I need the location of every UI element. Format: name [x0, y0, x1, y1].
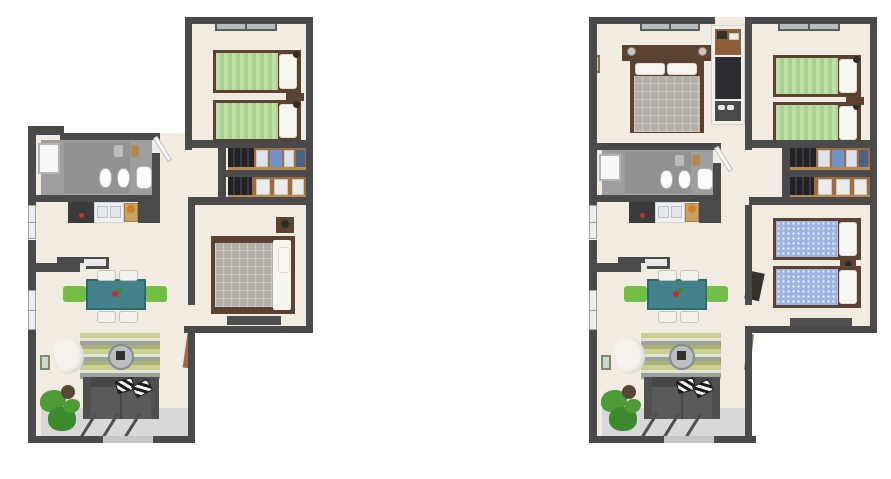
dining-chair-4: [119, 311, 138, 323]
centerpiece-green: [678, 288, 683, 293]
bed2b-mattress: [776, 105, 838, 141]
living-window: [28, 290, 36, 330]
living-right-wall: [745, 333, 752, 443]
master-quilt: [634, 76, 700, 132]
bedroom1-left-wall: [185, 17, 192, 150]
floor-plan-left: [28, 17, 313, 443]
bed1-nightstand: [286, 93, 304, 101]
bed2a-lamp: [853, 56, 860, 63]
wardrobe-divider-wall: [782, 170, 870, 177]
sofa-arm-right: [151, 377, 159, 419]
wardrobe1-box1: [256, 150, 268, 167]
kitchen-right-wall: [713, 163, 721, 223]
wall-picture: [601, 355, 611, 370]
kitchen-window: [589, 205, 597, 239]
bidet: [99, 168, 112, 188]
bath-sink: [136, 166, 152, 189]
wardrobe-left-wall: [218, 148, 226, 197]
master-pillow-2: [667, 63, 697, 75]
kitchen-window: [28, 205, 36, 239]
sofa-seam: [120, 389, 122, 419]
kitchen-half-wall: [28, 263, 86, 272]
bed3a-mattress: [776, 221, 838, 257]
master-top-wall: [589, 17, 715, 24]
hall-top-wall: [60, 133, 160, 140]
closet-shoe-2: [727, 105, 734, 110]
south-wall-a: [28, 436, 103, 443]
kitchen-basket-item: [688, 205, 696, 213]
bedroom2-bottom-wall: [184, 326, 313, 333]
east-wall: [870, 17, 877, 333]
wardrobe2-box3: [854, 179, 867, 195]
bed2-pillow: [278, 247, 290, 273]
closet-upper-item1: [717, 31, 727, 39]
wardrobe-left-wall: [782, 148, 790, 197]
bed1b-pillow: [279, 104, 297, 138]
bedroom2-left-wall: [188, 205, 195, 305]
sideboard-top: [84, 259, 106, 266]
wardrobe2-box1: [256, 179, 270, 195]
dining-chair-4: [680, 311, 699, 323]
bedroom1-bottom-wall: [185, 140, 313, 148]
dining-bench-right: [145, 286, 167, 302]
master-sconce-2: [698, 47, 707, 56]
bed2b-pillow: [839, 106, 857, 140]
green-bottom-wall: [745, 140, 877, 148]
toilet: [678, 170, 691, 189]
kitchen-cabinet: [699, 202, 713, 223]
dining-chair-1: [658, 270, 677, 281]
wardrobe1-box4: [296, 150, 305, 167]
south-wall-b: [714, 436, 756, 443]
bidet: [660, 170, 673, 189]
kitchen-basin1: [97, 206, 108, 218]
master-pillow-1: [635, 63, 665, 75]
bed1b-lamp: [293, 101, 300, 108]
bedroom3-bottom-wall: [745, 326, 877, 333]
sofa-arm-left: [83, 377, 91, 419]
bed3b-mattress: [776, 269, 838, 305]
wardrobe1-box3: [284, 150, 294, 167]
wardrobe1-clothes: [790, 148, 816, 169]
wardrobe1-clothes: [228, 148, 254, 169]
coffee-table-decor: [677, 351, 686, 360]
kitchen-right-wall: [152, 153, 160, 223]
sofa-seam: [681, 389, 683, 419]
living-window: [589, 290, 597, 330]
kitchen-basin2: [110, 206, 121, 218]
sideboard-top: [645, 259, 667, 266]
west-wall-c: [589, 330, 597, 443]
green-top-wall: [745, 17, 877, 24]
south-gap: [103, 436, 153, 443]
shower: [599, 154, 621, 181]
west-wall-a: [589, 17, 597, 205]
bedroom2-mat: [227, 316, 281, 325]
center-wall: [745, 17, 752, 150]
bed1a-mattress: [216, 53, 278, 90]
bath-tap2: [131, 145, 139, 157]
bed1b-mattress: [216, 103, 278, 139]
coffee-table-decor: [116, 351, 125, 360]
west-wall-c: [28, 330, 36, 443]
wardrobe2-box1: [818, 179, 832, 195]
bedroom3-left-wall: [745, 205, 752, 305]
bed3b-pillow: [839, 270, 857, 304]
floor-plan-right: [589, 17, 877, 443]
bath-tap1: [114, 145, 123, 157]
dining-chair-3: [658, 311, 677, 323]
dining-chair-2: [680, 270, 699, 281]
toilet: [117, 168, 130, 188]
dining-chair-2: [119, 270, 138, 281]
closet-rail: [715, 57, 741, 99]
closet-shoe-1: [718, 105, 725, 110]
closet-upper-item2: [729, 33, 739, 40]
bedroom2-lamp: [281, 220, 289, 228]
bed1a-lamp: [293, 51, 300, 58]
bath-tap2: [692, 155, 700, 166]
wardrobe-divider-wall: [218, 170, 313, 177]
bed2-nightstand: [846, 97, 864, 105]
kitchen-basin2: [671, 206, 682, 218]
floor-plans-canvas: [0, 0, 891, 479]
wardrobe1-box2: [270, 150, 282, 167]
bed2a-mattress: [776, 58, 838, 94]
bedroom2-top-wall: [188, 197, 313, 205]
stove-knob: [640, 213, 645, 218]
plant-pot: [622, 385, 636, 399]
kitchen-half-wall-cap: [641, 263, 647, 272]
plant-pot: [61, 385, 75, 399]
kitchen-basin1: [658, 206, 669, 218]
wardrobe2-box3: [292, 179, 304, 195]
stove-knob: [79, 213, 84, 218]
bed1a-pillow: [279, 54, 297, 89]
wardrobe2-box2: [836, 179, 850, 195]
south-wall-a: [589, 436, 664, 443]
sofa-arm-right: [712, 377, 720, 419]
living-right-wall: [188, 333, 195, 443]
master-sconce-1: [627, 47, 636, 56]
bathroom-bottom-wall: [596, 195, 721, 202]
bed2-quilt: [215, 243, 273, 307]
bed3a-pillow: [839, 222, 857, 256]
south-gap: [664, 436, 714, 443]
west-wall-a: [28, 128, 36, 205]
wall-picture: [40, 355, 50, 370]
master-bottom-wall: [589, 143, 721, 150]
wardrobe1-box2: [832, 150, 844, 167]
dining-chair-3: [97, 311, 116, 323]
bed2a-pillow: [839, 59, 857, 93]
wardrobe1-box1: [818, 150, 830, 167]
closet-lower: [715, 101, 741, 121]
wardrobe1-box4: [859, 150, 868, 167]
kitchen-half-wall: [589, 263, 647, 272]
bath-sink: [697, 168, 713, 190]
dining-chair-1: [97, 270, 116, 281]
kitchen-cabinet: [138, 202, 152, 223]
kitchen-half-wall-cap: [80, 263, 86, 272]
dining-bench-left: [63, 286, 86, 302]
wardrobe1-box3: [846, 150, 857, 167]
kitchen-basket-item: [127, 205, 135, 213]
centerpiece-green: [117, 288, 122, 293]
south-wall-b: [153, 436, 195, 443]
bedroom1-top-wall: [185, 17, 313, 24]
bath-tap1: [675, 155, 684, 166]
bathroom-bottom-wall: [35, 195, 160, 202]
sofa-arm-left: [644, 377, 652, 419]
wardrobe2-box2: [274, 179, 288, 195]
bedroom3-top-wall: [749, 197, 877, 205]
dining-bench-right: [706, 286, 728, 302]
dining-bench-left: [624, 286, 647, 302]
shower: [38, 143, 60, 174]
